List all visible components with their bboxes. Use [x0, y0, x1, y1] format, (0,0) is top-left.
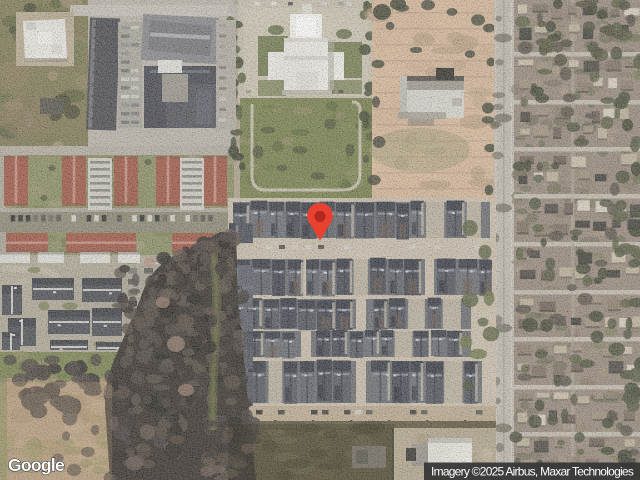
svg-text:Imagery ©2025 Airbus, Maxar Te: Imagery ©2025 Airbus, Maxar Technologies — [431, 465, 634, 479]
svg-text:Google: Google — [8, 455, 65, 475]
